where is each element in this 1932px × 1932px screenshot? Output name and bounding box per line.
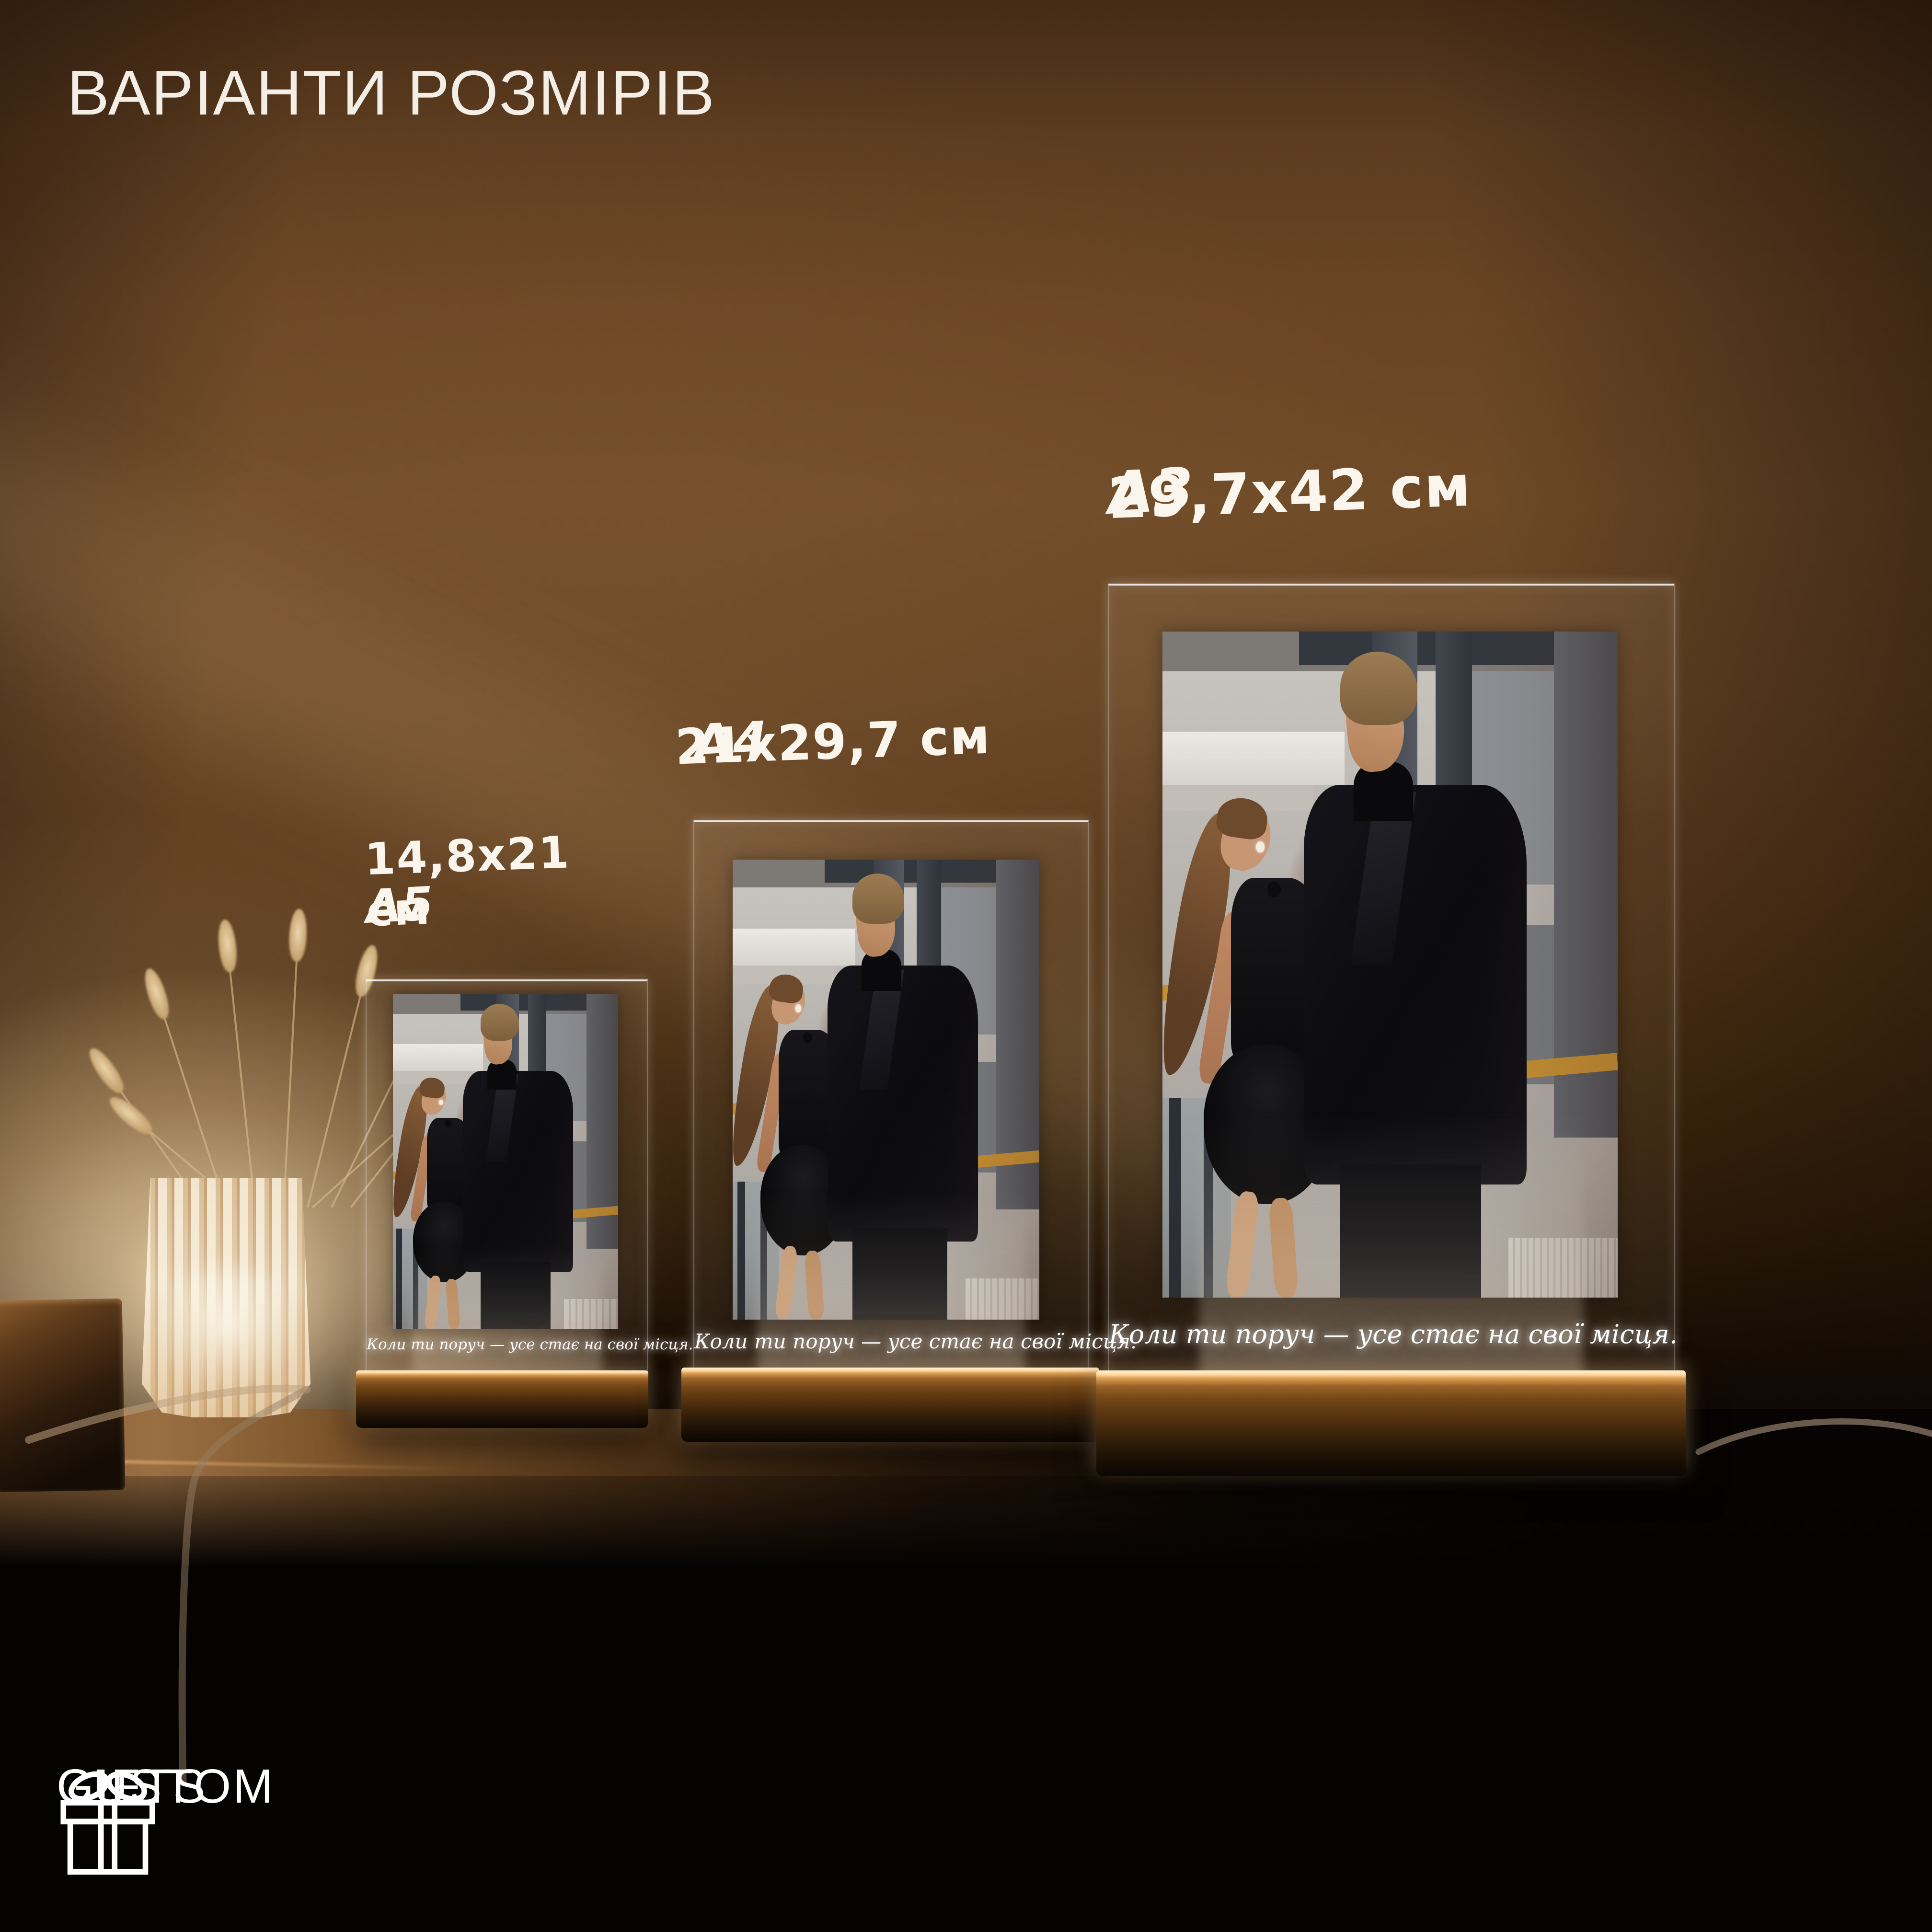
bunny-tail <box>140 966 173 1022</box>
format-label: A5 <box>364 875 458 934</box>
dark-foreground <box>0 1476 1932 1932</box>
acrylic-plaque-a3: Коли ти поруч — усе стає на свої місця. <box>1108 584 1675 1379</box>
wooden-led-base <box>356 1370 648 1428</box>
page-title: ВАРІАНТИ РОЗМІРІВ <box>67 57 715 129</box>
grass-stem <box>307 993 362 1207</box>
product-showcase-scene: 14,8x21 см A5 <box>0 0 1932 1932</box>
format-label: A3 <box>1106 455 1201 528</box>
vase-lamp <box>142 1178 310 1417</box>
wood-block <box>0 1299 125 1493</box>
acrylic-plaque-a4: Коли ти поруч — усе стає на свої місця. <box>693 820 1089 1376</box>
couple-photo <box>733 860 1039 1320</box>
photo-vignette <box>733 860 1039 1320</box>
photo-vignette <box>393 994 618 1329</box>
grass-stem <box>283 959 298 1207</box>
wooden-led-base <box>1096 1370 1686 1476</box>
grass-stem <box>229 969 256 1208</box>
acrylic-plaque-a5: Коли ти поруч — усе стає на свої місця. <box>366 979 648 1375</box>
photo-print <box>393 994 618 1329</box>
engraved-quote: Коли ти поруч — усе стає на свої місця. <box>367 1336 647 1353</box>
couple-photo <box>1162 632 1618 1298</box>
format-label: A4 <box>692 709 796 773</box>
engraved-quote: Коли ти поруч — усе стає на свої місця. <box>694 1330 1088 1353</box>
couple-photo <box>393 994 618 1329</box>
bunny-tail <box>84 1044 129 1097</box>
engraved-quote: Коли ти поруч — усе стає на свої місця. <box>1109 1319 1674 1349</box>
dried-grass-stems <box>81 910 369 1207</box>
bunny-tail <box>216 919 239 973</box>
product-a5: 14,8x21 см A5 <box>366 979 648 1459</box>
photo-print <box>733 860 1039 1320</box>
photo-vignette <box>1162 632 1618 1298</box>
product-a4: 21x29,7 см A4 <box>693 820 1089 1472</box>
product-a3: 29,7x42 см A3 <box>1108 584 1675 1484</box>
wooden-led-base <box>681 1368 1099 1442</box>
photo-print <box>1162 632 1618 1298</box>
brand-line2: GIFTS <box>57 1759 207 1814</box>
bunny-tail <box>288 908 308 962</box>
bunny-tail <box>105 1092 156 1139</box>
